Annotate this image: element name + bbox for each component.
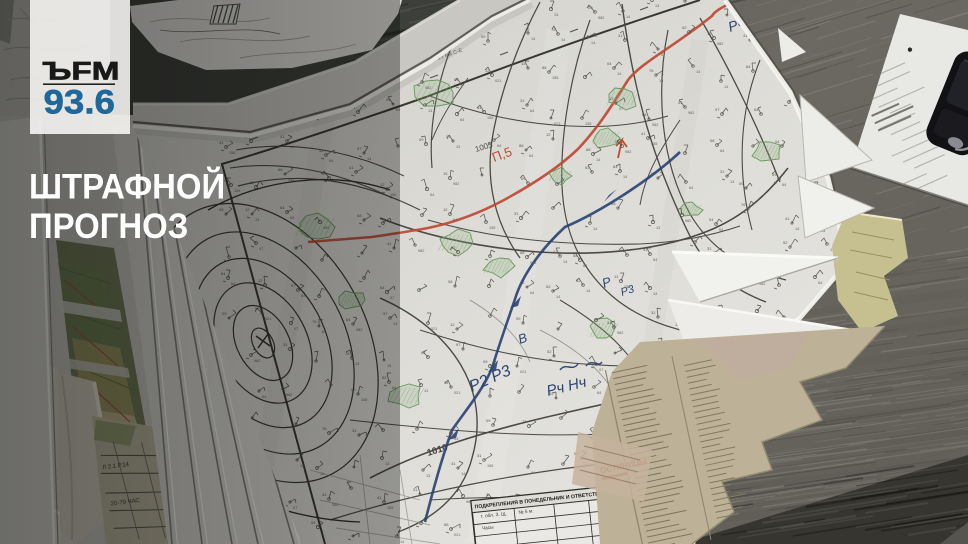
svg-text:12: 12 (546, 132, 551, 137)
svg-text:13: 13 (730, 180, 734, 184)
svg-text:04: 04 (709, 217, 714, 222)
svg-text:14: 14 (623, 175, 627, 179)
svg-text:97: 97 (446, 134, 451, 139)
svg-text:31: 31 (651, 310, 656, 315)
svg-text:08: 08 (573, 253, 578, 258)
svg-text:31: 31 (413, 487, 418, 492)
svg-text:64: 64 (454, 437, 458, 441)
svg-text:31: 31 (486, 492, 491, 497)
svg-text:09: 09 (516, 316, 521, 321)
svg-text:64: 64 (613, 164, 618, 169)
svg-text:41: 41 (643, 247, 648, 252)
svg-text:982: 982 (625, 150, 631, 154)
svg-text:64: 64 (720, 149, 724, 153)
svg-text:76: 76 (522, 419, 527, 424)
svg-text:41: 41 (553, 249, 558, 254)
svg-text:09: 09 (486, 418, 491, 423)
svg-text:88: 88 (519, 143, 524, 148)
svg-text:31: 31 (477, 453, 482, 458)
svg-text:52: 52 (576, 278, 581, 283)
svg-text:12: 12 (485, 68, 490, 73)
svg-text:13: 13 (554, 13, 558, 17)
svg-text:88: 88 (611, 201, 616, 206)
svg-text:31: 31 (618, 33, 623, 38)
svg-text:14: 14 (596, 158, 600, 162)
svg-text:04: 04 (607, 61, 612, 66)
svg-text:982: 982 (425, 86, 431, 90)
svg-text:09: 09 (588, 5, 593, 10)
svg-text:021: 021 (454, 533, 460, 537)
svg-text:07: 07 (619, 107, 623, 111)
svg-text:64: 64 (653, 258, 657, 262)
svg-text:64: 64 (530, 109, 534, 113)
svg-text:09: 09 (739, 181, 744, 186)
svg-text:97: 97 (456, 342, 461, 347)
svg-text:14: 14 (461, 472, 465, 476)
svg-text:15: 15 (521, 61, 526, 66)
svg-text:64: 64 (818, 281, 822, 285)
svg-text:41: 41 (620, 248, 625, 253)
svg-text:14: 14 (617, 72, 621, 76)
svg-text:41: 41 (785, 216, 790, 221)
svg-text:09: 09 (483, 359, 488, 364)
svg-text:12: 12 (609, 96, 614, 101)
svg-text:982: 982 (418, 249, 424, 253)
svg-text:64: 64 (782, 183, 786, 187)
svg-text:31: 31 (514, 211, 519, 216)
svg-text:12: 12 (614, 274, 619, 279)
svg-text:09: 09 (454, 77, 459, 82)
svg-text:76: 76 (649, 68, 654, 73)
svg-text:982: 982 (598, 16, 604, 20)
svg-text:52: 52 (585, 165, 590, 170)
svg-text:07: 07 (661, 53, 665, 57)
svg-text:52: 52 (547, 349, 552, 354)
svg-text:41: 41 (451, 461, 456, 466)
svg-text:04: 04 (775, 139, 780, 144)
svg-text:41: 41 (477, 105, 482, 110)
svg-text:64: 64 (597, 391, 601, 395)
svg-text:021: 021 (554, 122, 560, 126)
svg-text:155: 155 (487, 464, 493, 468)
svg-text:97: 97 (451, 245, 456, 250)
svg-text:12: 12 (450, 322, 455, 327)
svg-text:15: 15 (443, 171, 448, 176)
svg-text:31: 31 (607, 320, 612, 325)
svg-text:52: 52 (546, 284, 551, 289)
svg-text:52: 52 (682, 25, 687, 30)
svg-text:09: 09 (481, 34, 486, 39)
svg-text:14: 14 (400, 540, 404, 544)
svg-text:13: 13 (426, 474, 430, 478)
svg-text:64: 64 (497, 144, 501, 148)
svg-text:08: 08 (642, 112, 647, 117)
svg-text:14: 14 (626, 15, 630, 19)
svg-text:982: 982 (617, 331, 623, 335)
svg-text:13: 13 (656, 226, 660, 230)
svg-text:09: 09 (772, 172, 777, 177)
svg-text:13: 13 (424, 389, 428, 393)
svg-text:14: 14 (563, 260, 567, 264)
svg-text:021: 021 (431, 327, 437, 331)
svg-text:13: 13 (428, 109, 432, 113)
svg-text:88: 88 (586, 147, 591, 152)
svg-text:155: 155 (487, 116, 493, 120)
svg-text:021: 021 (495, 79, 501, 83)
svg-text:76: 76 (741, 202, 746, 207)
svg-text:14: 14 (586, 289, 590, 293)
svg-text:64: 64 (583, 264, 587, 268)
svg-text:09: 09 (615, 139, 620, 144)
svg-text:155: 155 (585, 122, 591, 126)
svg-text:14: 14 (593, 227, 597, 231)
svg-text:52: 52 (783, 240, 788, 245)
svg-text:64: 64 (529, 154, 533, 158)
svg-text:88: 88 (520, 250, 525, 255)
svg-text:021: 021 (454, 391, 460, 395)
svg-text:155: 155 (651, 142, 657, 146)
svg-text:31: 31 (720, 169, 725, 174)
svg-text:97: 97 (715, 107, 720, 112)
svg-text:04: 04 (444, 380, 449, 385)
svg-text:64: 64 (430, 193, 434, 197)
svg-text:155: 155 (624, 285, 630, 289)
svg-text:982: 982 (717, 42, 723, 46)
svg-text:14: 14 (561, 38, 565, 42)
svg-text:93.6: 93.6 (44, 84, 115, 121)
svg-text:155: 155 (489, 226, 495, 230)
svg-text:14: 14 (591, 41, 595, 45)
svg-text:31: 31 (707, 246, 712, 251)
svg-text:982: 982 (652, 123, 658, 127)
svg-text:982: 982 (685, 219, 691, 223)
svg-text:88: 88 (444, 522, 449, 527)
svg-text:021: 021 (520, 370, 526, 374)
svg-text:14: 14 (724, 85, 728, 89)
svg-text:64: 64 (651, 171, 656, 176)
svg-text:08: 08 (710, 138, 715, 143)
svg-text:ЪFM: ЪFM (43, 57, 120, 85)
svg-text:982: 982 (530, 261, 536, 265)
svg-text:12: 12 (707, 31, 712, 36)
svg-text:64: 64 (530, 291, 534, 295)
svg-text:12: 12 (443, 207, 448, 212)
svg-text:ШТРАФНОЙ: ШТРАФНОЙ (29, 167, 225, 207)
svg-text:13: 13 (456, 145, 460, 149)
svg-text:64: 64 (689, 186, 693, 190)
svg-text:07: 07 (599, 368, 603, 372)
svg-text:76: 76 (551, 27, 556, 32)
svg-text:64: 64 (719, 228, 723, 232)
svg-text:64: 64 (453, 218, 457, 222)
svg-text:12: 12 (549, 391, 554, 396)
svg-text:13: 13 (659, 79, 663, 83)
svg-text:14: 14 (653, 292, 657, 296)
svg-text:ПРОГНОЗ: ПРОГНОЗ (29, 207, 188, 246)
svg-text:64: 64 (460, 118, 464, 122)
svg-text:88: 88 (688, 235, 693, 240)
svg-text:88: 88 (542, 65, 547, 70)
svg-text:14: 14 (556, 295, 560, 299)
svg-text:31: 31 (520, 98, 525, 103)
svg-text:14: 14 (531, 37, 535, 41)
svg-text:13: 13 (655, 4, 659, 8)
svg-text:64: 64 (531, 471, 535, 475)
svg-text:09: 09 (521, 176, 526, 181)
svg-text:09: 09 (419, 137, 424, 142)
svg-text:64: 64 (421, 350, 426, 355)
svg-text:155: 155 (552, 76, 558, 80)
svg-text:982: 982 (453, 182, 459, 186)
svg-text:982: 982 (688, 111, 694, 115)
svg-text:08: 08 (448, 279, 453, 284)
svg-text:64: 64 (754, 107, 759, 112)
svg-text:12: 12 (520, 280, 525, 285)
svg-text:41: 41 (678, 100, 683, 105)
svg-text:64: 64 (746, 64, 751, 69)
svg-text:14: 14 (795, 227, 799, 231)
svg-text:14: 14 (696, 70, 700, 74)
svg-text:41: 41 (641, 131, 646, 136)
